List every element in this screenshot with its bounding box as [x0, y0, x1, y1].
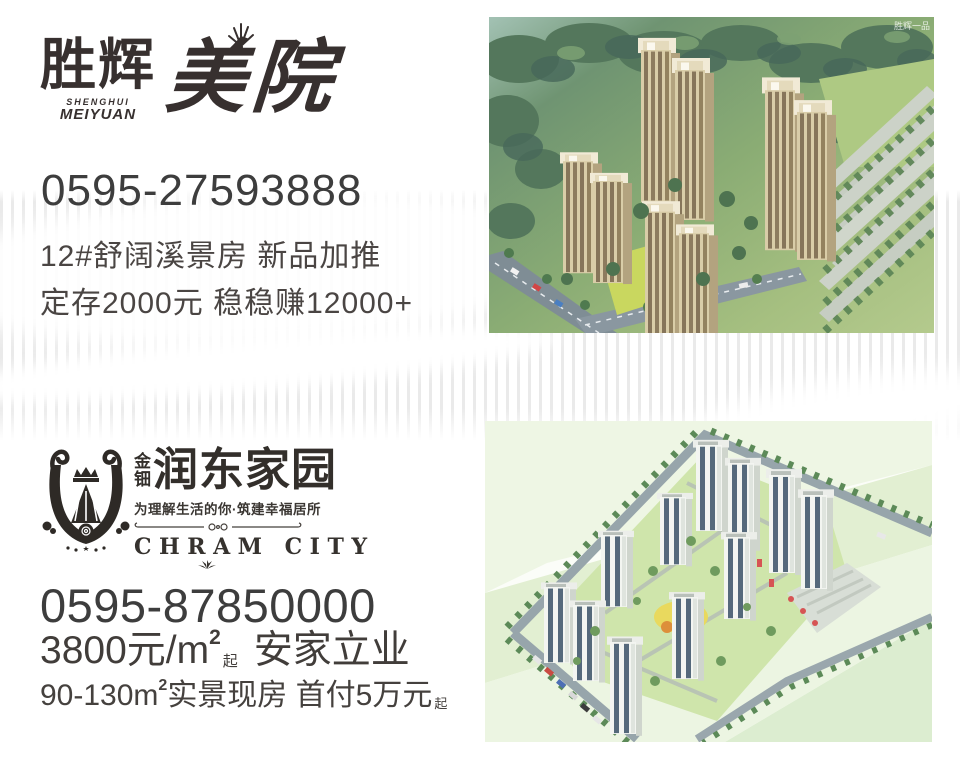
leaf-ornament-icon: [196, 560, 218, 570]
spec-qi-subscript: 起: [434, 697, 447, 710]
listing1-aerial-render: 胜辉一品: [489, 17, 934, 333]
price-superscript: 2: [209, 627, 221, 648]
sparkle-icon: [224, 20, 258, 50]
logo-small-top: 金: [134, 453, 151, 471]
listing2-aerial-photo[interactable]: [485, 421, 932, 742]
listing2-price-line: 3800元/m 2 起 安家立业: [40, 629, 410, 673]
spec-superscript: 2: [158, 678, 167, 694]
listing1-promo-line2: 定存2000元 稳稳赚12000+: [40, 278, 413, 322]
ornamental-divider: [134, 521, 302, 533]
listing1-promo-line1: 12#舒阔溪景房 新品加推: [40, 231, 381, 275]
price-text: 3800元/m: [40, 629, 209, 673]
logo-text-rundong-jiayuan: 润东家园: [153, 447, 337, 493]
logo-text-shenghui: 胜辉: [40, 34, 156, 96]
brand-tagline: 为理解生活的你·筑建幸福居所: [134, 498, 375, 518]
photo-watermark: 胜辉一品: [894, 21, 930, 31]
logo-small-bottom: 钿: [134, 471, 151, 489]
chram-city-emblem: [40, 443, 132, 555]
logo-latin-chram-city: CHRAM CITY: [134, 534, 375, 560]
real-estate-promo-page: 胜辉 SHENGHUI MEIYUAN 美院 0595-27593888 12#…: [0, 0, 960, 778]
phone-number-listing1[interactable]: 0595-27593888: [41, 166, 362, 216]
price-slogan: 安家立业: [254, 629, 410, 673]
logo-latin-line2: MEIYUAN: [60, 107, 136, 123]
logo-small-characters: 金 钿: [134, 453, 151, 489]
price-qi-subscript: 起: [223, 654, 238, 669]
listing2-spec-line: 90-130m 2 实景现房 首付5万元 起: [40, 679, 447, 713]
chram-city-logo-text: 金 钿 润东家园 为理解生活的你·筑建幸福居所 CHRAM CITY: [134, 447, 375, 570]
spec-text: 实景现房 首付5万元: [167, 679, 432, 713]
logo-latin-text: SHENGHUI MEIYUAN: [60, 98, 136, 123]
listing1-aerial-photo[interactable]: 胜辉一品: [489, 17, 934, 333]
spec-area-text: 90-130m: [40, 679, 158, 713]
listing2-aerial-render: [485, 421, 932, 742]
phone-number-listing2[interactable]: 0595-87850000: [40, 578, 376, 633]
shenghui-meiyuan-logo: 胜辉 SHENGHUI MEIYUAN 美院: [40, 34, 338, 123]
